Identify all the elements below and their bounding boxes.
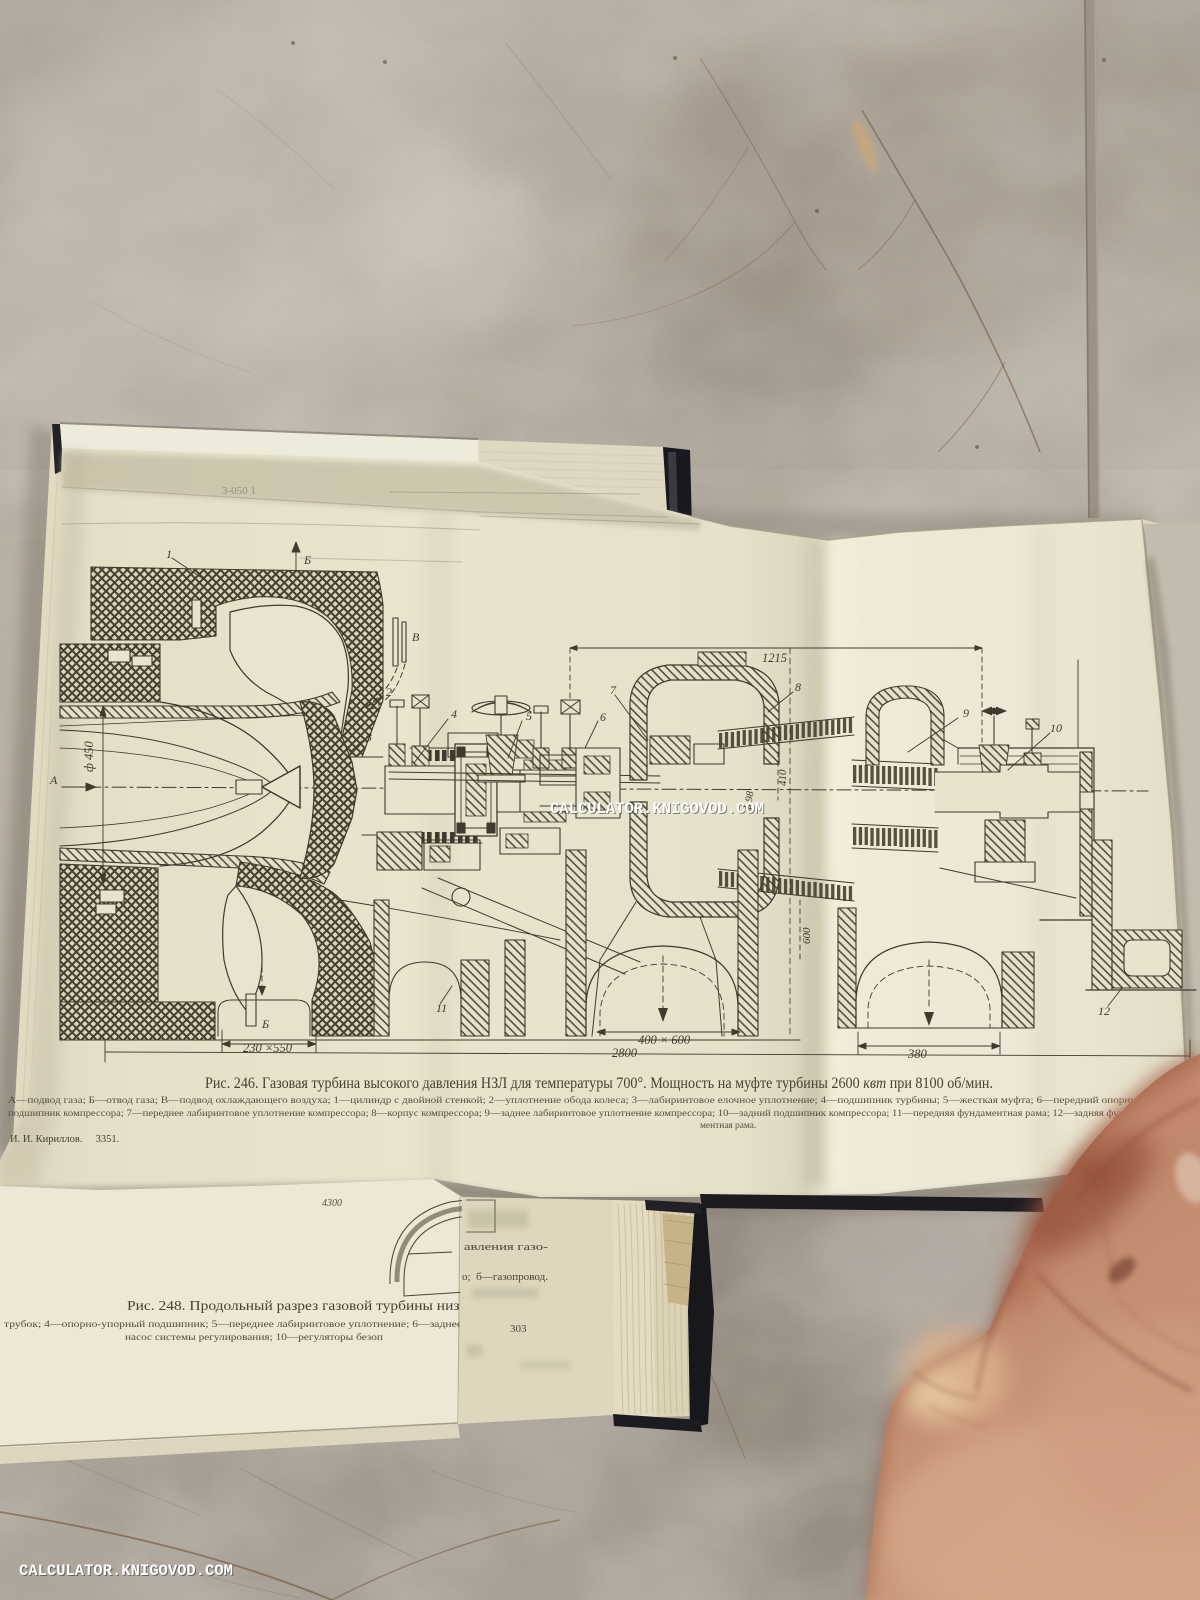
svg-text:303: 303 xyxy=(510,1323,527,1335)
svg-text:ментная рама.: ментная рама. xyxy=(700,1121,756,1131)
svg-text:CALCULATOR.KNIGOVOD.COM: CALCULATOR.KNIGOVOD.COM xyxy=(19,1562,233,1580)
svg-text:насос системы регулирования; 1: насос системы регулирования; 10—регулято… xyxy=(125,1332,383,1343)
svg-text:2: 2 xyxy=(386,685,392,699)
svg-text:11: 11 xyxy=(436,1001,447,1015)
svg-text:А—подвод газа; Б—отвод газа; В: А—подвод газа; Б—отвод газа; В—подвод ох… xyxy=(8,1095,1144,1106)
svg-text:1215: 1215 xyxy=(762,651,787,665)
svg-text:410: 410 xyxy=(777,769,789,786)
svg-text:12: 12 xyxy=(1098,1004,1110,1018)
svg-text:600: 600 xyxy=(801,927,813,944)
svg-text:3-050 1: 3-050 1 xyxy=(222,485,256,497)
svg-text:подшипник компрессора; 7—перед: подшипник компрессора; 7—переднее лабири… xyxy=(8,1108,1138,1119)
svg-text:3: 3 xyxy=(365,730,372,744)
svg-text:4300: 4300 xyxy=(322,1198,342,1209)
svg-text:2800: 2800 xyxy=(612,1046,638,1060)
svg-text:И. И. Кириллов. 3351.: И. И. Кириллов. 3351. xyxy=(10,1134,119,1145)
svg-text:CALCULATOR.KNIGOVOD.COM: CALCULATOR.KNIGOVOD.COM xyxy=(550,800,764,818)
svg-text:Рис. 246. Газовая турбина высо: Рис. 246. Газовая турбина высокого давле… xyxy=(205,1075,993,1092)
svg-text:о; б—газопровод.: о; б—газопровод. xyxy=(462,1272,548,1283)
svg-text:1: 1 xyxy=(166,547,172,561)
svg-text:8: 8 xyxy=(795,680,801,694)
svg-text:А: А xyxy=(49,773,58,787)
svg-text:9: 9 xyxy=(963,706,969,720)
svg-text:Б: Б xyxy=(303,553,311,567)
svg-text:6: 6 xyxy=(600,710,606,724)
svg-text:4: 4 xyxy=(451,707,457,721)
svg-text:В: В xyxy=(412,630,420,644)
svg-text:Рис. 248. Продольный разрез га: Рис. 248. Продольный разрез газовой турб… xyxy=(127,1298,467,1313)
svg-text:230 ×550: 230 ×550 xyxy=(243,1041,293,1055)
svg-text:Б: Б xyxy=(261,1017,269,1031)
svg-text:10: 10 xyxy=(1050,721,1062,735)
svg-text:ф 450: ф 450 xyxy=(82,741,96,772)
svg-text:трубок; 4—опорно-упорный подши: трубок; 4—опорно-упорный подшипник; 5—пе… xyxy=(4,1319,462,1330)
svg-text:авления газо-: авления газо- xyxy=(464,1241,548,1253)
svg-text:7: 7 xyxy=(610,683,617,697)
svg-text:5: 5 xyxy=(526,709,532,723)
svg-text:400 × 600: 400 × 600 xyxy=(638,1033,691,1047)
svg-text:380: 380 xyxy=(907,1047,928,1061)
